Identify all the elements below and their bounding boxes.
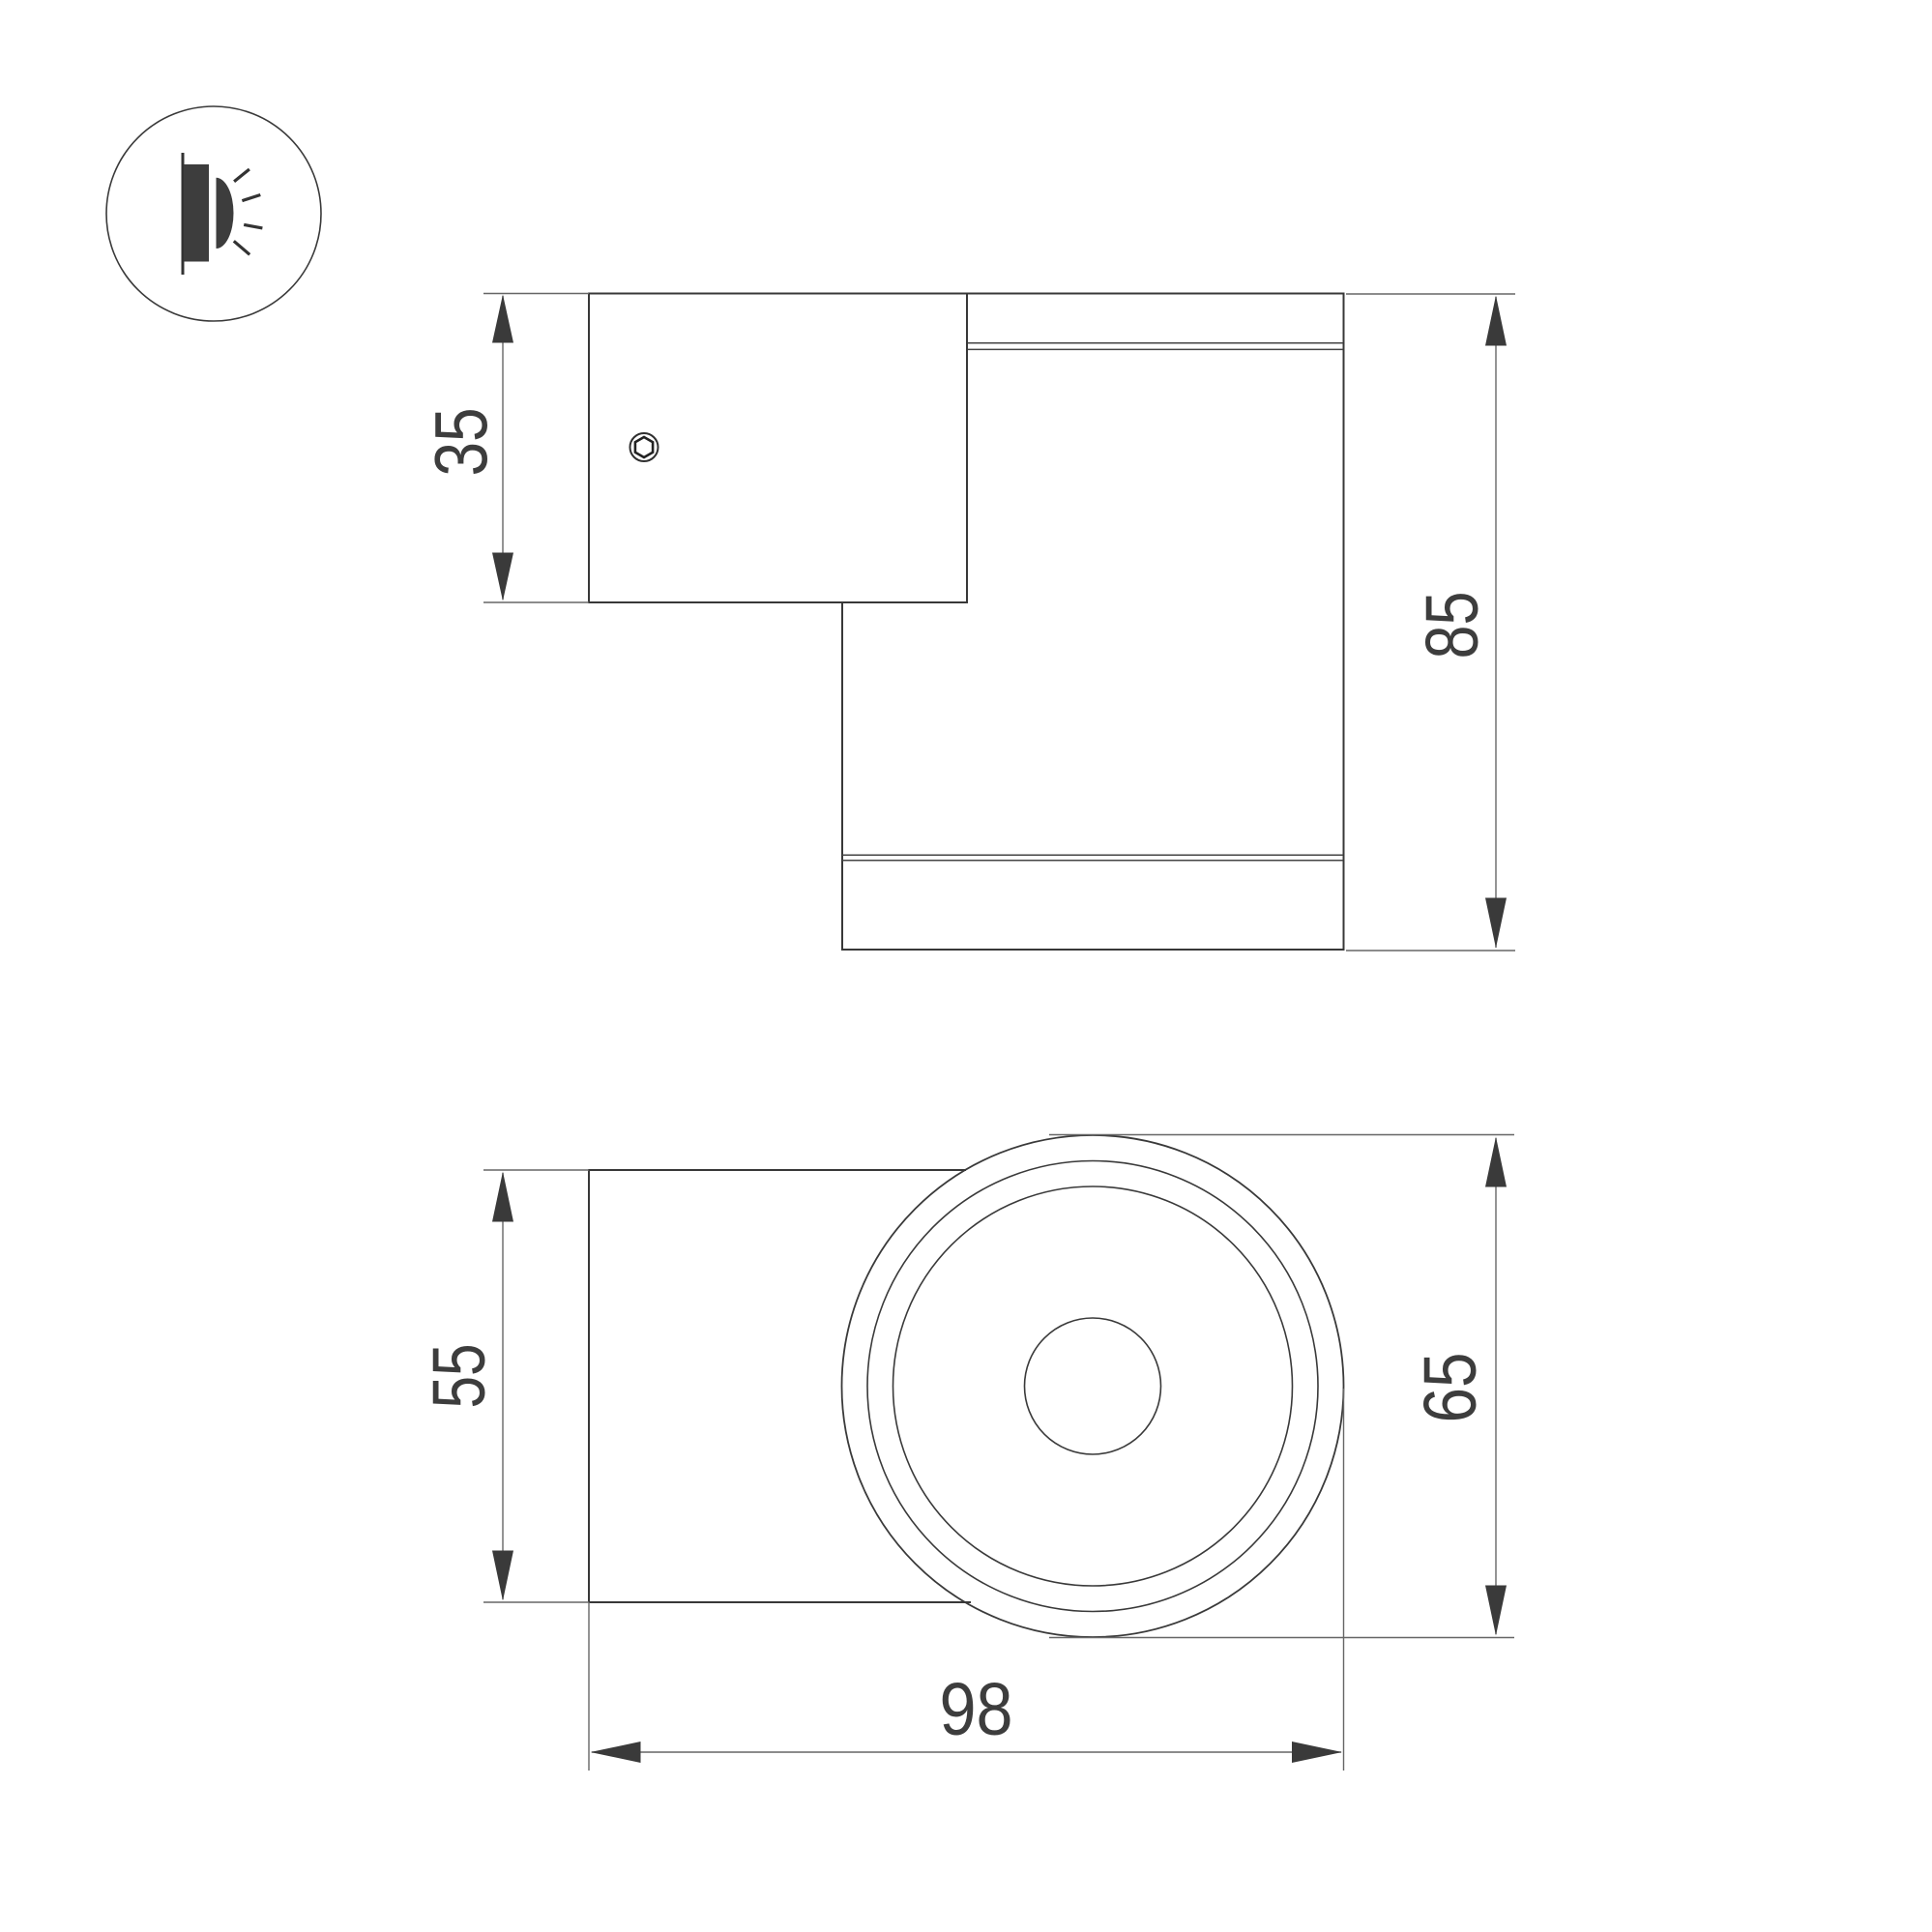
- svg-text:55: 55: [418, 1344, 501, 1409]
- svg-text:35: 35: [421, 408, 504, 477]
- svg-text:65: 65: [1409, 1353, 1492, 1423]
- svg-text:98: 98: [940, 1668, 1013, 1751]
- svg-text:85: 85: [1411, 592, 1494, 659]
